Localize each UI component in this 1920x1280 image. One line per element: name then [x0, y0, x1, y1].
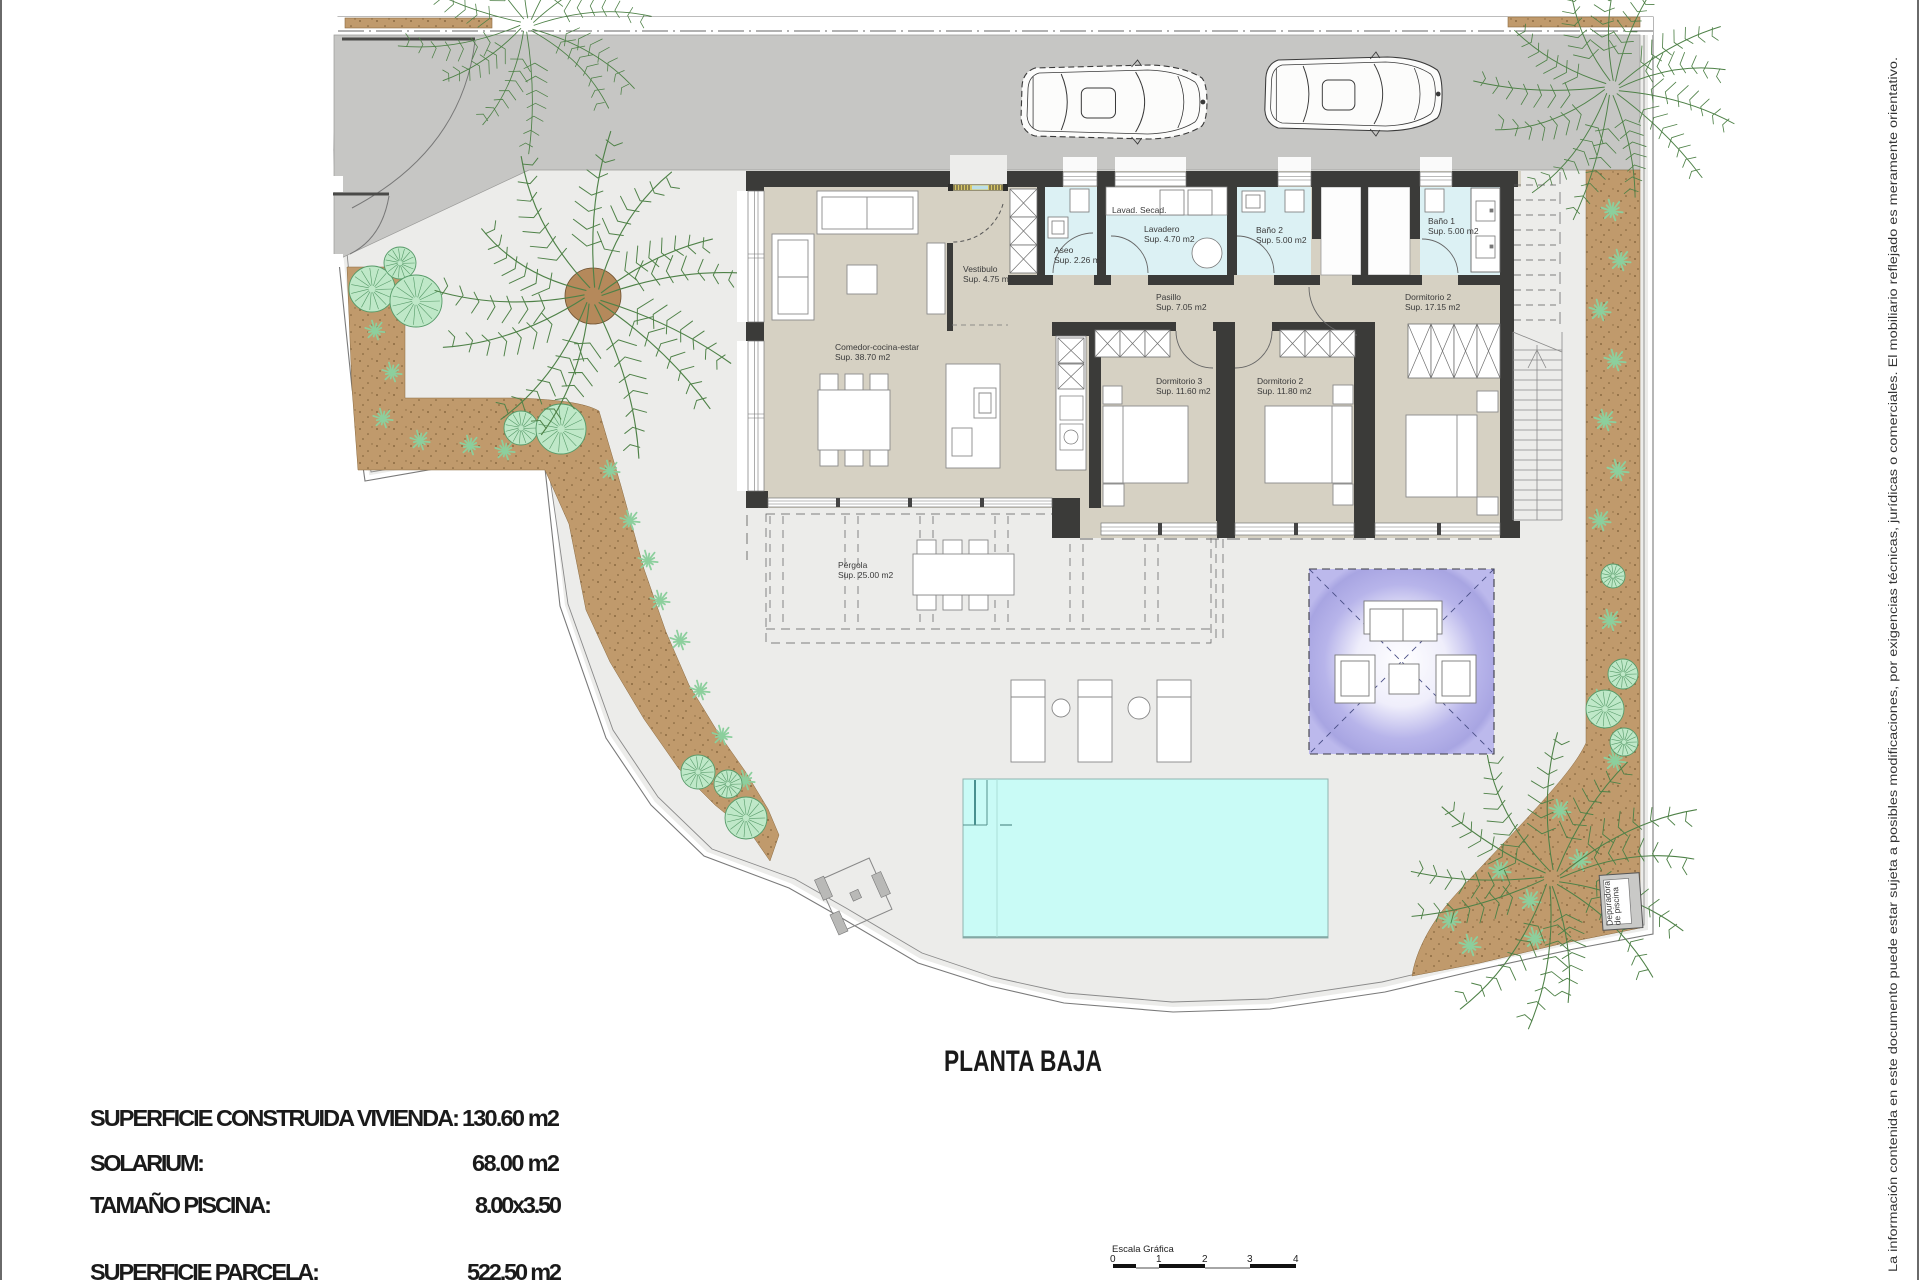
svg-text:8.00x3.50: 8.00x3.50: [475, 1192, 562, 1218]
svg-text:Comedor-cocina-estar: Comedor-cocina-estar: [835, 342, 919, 352]
svg-text:522.50 m2: 522.50 m2: [467, 1259, 562, 1280]
svg-text:Sup. 5.00 m2: Sup. 5.00 m2: [1428, 226, 1479, 236]
svg-text:3: 3: [1247, 1254, 1253, 1265]
svg-text:Escala Gráfica: Escala Gráfica: [1112, 1244, 1174, 1255]
svg-text:Pérgola: Pérgola: [838, 560, 868, 570]
svg-text:68.00 m2: 68.00 m2: [472, 1150, 560, 1176]
svg-text:2: 2: [1202, 1254, 1208, 1265]
svg-text:Sup. 11.60 m2: Sup. 11.60 m2: [1156, 386, 1211, 396]
svg-text:0: 0: [1110, 1254, 1116, 1265]
svg-text:4: 4: [1293, 1254, 1299, 1265]
svg-text:Vestibulo: Vestibulo: [963, 264, 998, 274]
svg-text:Sup. 17.15 m2: Sup. 17.15 m2: [1405, 302, 1461, 312]
svg-text:Dormitorio 2: Dormitorio 2: [1257, 376, 1304, 386]
svg-text:SUPERFICIE CONSTRUIDA VIVIENDA: SUPERFICIE CONSTRUIDA VIVIENDA:: [90, 1105, 460, 1131]
svg-text:La información contenida en es: La información contenida en este documen…: [1888, 57, 1900, 1272]
svg-text:Sup. 4.70 m2: Sup. 4.70 m2: [1144, 234, 1195, 244]
svg-text:Sup. 38.70 m2: Sup. 38.70 m2: [835, 352, 891, 362]
svg-text:Baño 1: Baño 1: [1428, 216, 1455, 226]
svg-text:Sup. 2.26 m2: Sup. 2.26 m2: [1054, 255, 1105, 265]
svg-text:Pasillo: Pasillo: [1156, 292, 1181, 302]
svg-text:1: 1: [1156, 1254, 1162, 1265]
svg-text:Aseo: Aseo: [1054, 245, 1074, 255]
svg-text:Secad.: Secad.: [1140, 205, 1166, 215]
svg-text:TAMAÑO PISCINA:: TAMAÑO PISCINA:: [90, 1191, 272, 1218]
svg-text:Lavadero: Lavadero: [1144, 224, 1180, 234]
svg-text:PLANTA BAJA: PLANTA BAJA: [944, 1045, 1102, 1078]
svg-text:Lavad.: Lavad.: [1112, 205, 1138, 215]
svg-text:Sup. 4.75 m2: Sup. 4.75 m2: [963, 274, 1014, 284]
svg-text:Sup. 5.00 m2: Sup. 5.00 m2: [1256, 235, 1307, 245]
svg-text:Sup. 11.80 m2: Sup. 11.80 m2: [1257, 386, 1312, 396]
svg-text:SUPERFICIE PARCELA:: SUPERFICIE PARCELA:: [90, 1259, 320, 1280]
svg-text:130.60 m2: 130.60 m2: [462, 1105, 560, 1131]
svg-text:Sup. 7.05 m2: Sup. 7.05 m2: [1156, 302, 1207, 312]
svg-text:Baño 2: Baño 2: [1256, 225, 1283, 235]
svg-text:Dormitorio 3: Dormitorio 3: [1156, 376, 1203, 386]
svg-text:SOLARIUM:: SOLARIUM:: [90, 1150, 205, 1176]
svg-text:Dormitorio 2: Dormitorio 2: [1405, 292, 1452, 302]
svg-text:Sup. 25.00 m2: Sup. 25.00 m2: [838, 570, 894, 580]
